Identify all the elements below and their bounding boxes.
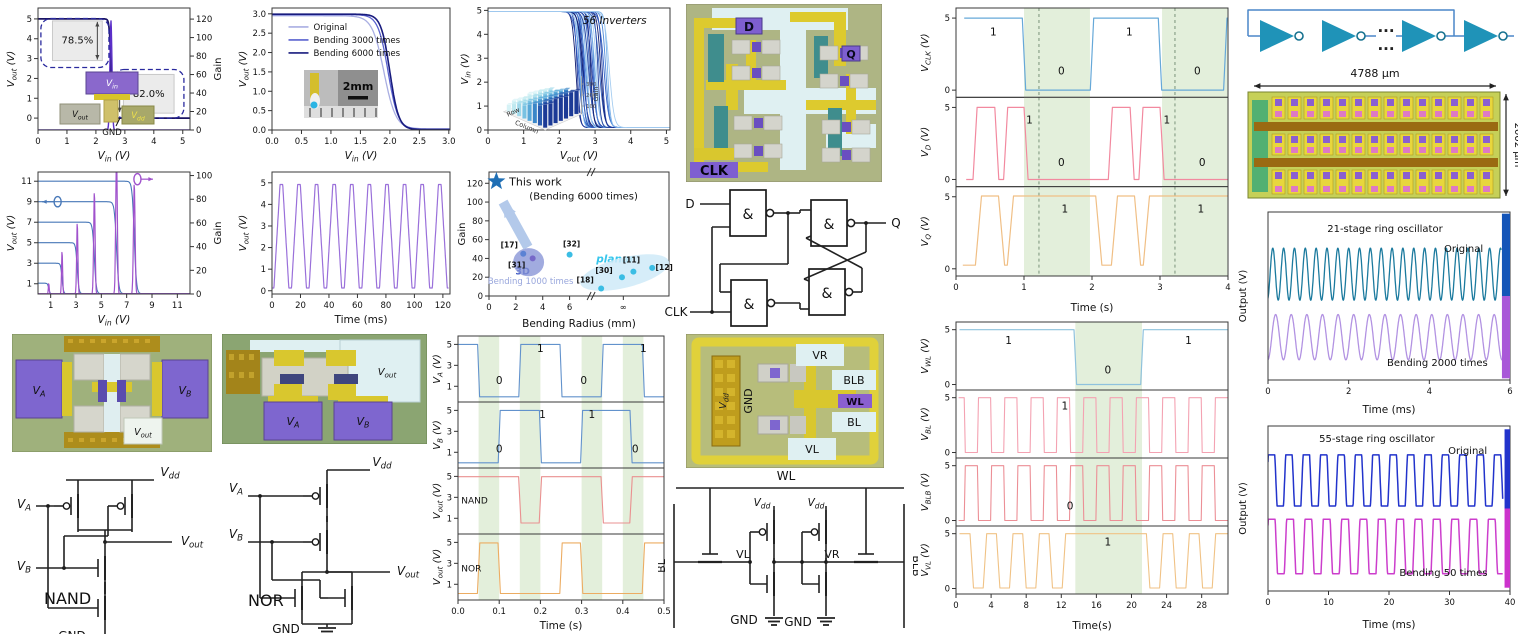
svg-text:0: 0 bbox=[953, 283, 958, 293]
nand-micrograph: Vout​VA​VB​ bbox=[12, 334, 212, 452]
d-latch-timing-panel: 05VCLK​ (V)101005VD​ (V)101005VQ​ (V)110… bbox=[918, 2, 1236, 316]
svg-text:28: 28 bbox=[1196, 601, 1207, 611]
svg-text:24: 24 bbox=[1161, 601, 1172, 611]
nand-nor-timing-panel: 135VA​ (V)0101135VB​ (V)0110135Vout​ (V)… bbox=[430, 332, 672, 634]
svg-text:3: 3 bbox=[477, 54, 482, 64]
inverters-56-panel: 012345Vin​ (V)012345Vout​ (V)56 Inverter… bbox=[458, 2, 680, 164]
svg-text:5: 5 bbox=[945, 14, 950, 24]
ring-oscillator-schematic: ...... bbox=[1238, 2, 1516, 64]
svg-text:0: 0 bbox=[945, 381, 950, 391]
svg-text:1: 1 bbox=[1197, 204, 1204, 216]
svg-text:1.5: 1.5 bbox=[252, 68, 266, 78]
svg-text:80: 80 bbox=[196, 52, 207, 62]
svg-text:1: 1 bbox=[640, 343, 647, 355]
svg-text:3.0: 3.0 bbox=[442, 137, 456, 147]
nand-schematic: Vdd​Vout​GNDVA​VB​ bbox=[8, 452, 220, 634]
svg-text:GND: GND bbox=[102, 128, 122, 138]
svg-text:40: 40 bbox=[196, 243, 207, 253]
svg-text:5: 5 bbox=[945, 530, 950, 540]
svg-text:Vdd​: Vdd​ bbox=[372, 455, 392, 472]
svg-text:1: 1 bbox=[1026, 114, 1033, 126]
svg-text:80: 80 bbox=[196, 195, 207, 205]
svg-text:78.5%: 78.5% bbox=[61, 36, 93, 47]
svg-text:2: 2 bbox=[93, 137, 98, 147]
svg-text:60: 60 bbox=[472, 236, 483, 246]
svg-text:D: D bbox=[685, 197, 694, 211]
svg-text:16: 16 bbox=[1091, 601, 1102, 611]
ring-oscillator-schematic-svg: ...... bbox=[1238, 2, 1516, 64]
svg-text:VL: VL bbox=[736, 548, 751, 561]
svg-text:1: 1 bbox=[1021, 283, 1026, 293]
svg-text:0: 0 bbox=[945, 86, 950, 96]
svg-text:3: 3 bbox=[27, 259, 32, 269]
svg-text:1: 1 bbox=[447, 514, 452, 524]
svg-text:3: 3 bbox=[27, 55, 32, 65]
svg-text:1: 1 bbox=[477, 102, 482, 112]
svg-text:0: 0 bbox=[496, 375, 503, 387]
svg-text:Vin​ (V): Vin​ (V) bbox=[98, 314, 131, 328]
nor-caption: NOR bbox=[248, 591, 284, 610]
ro21-output: Output (V)0246Time (ms)21-stage ring osc… bbox=[1236, 206, 1516, 418]
oscillator-output: 012345Vout​ (V)020406080100120Time (ms) bbox=[236, 166, 460, 328]
svg-text:0.5: 0.5 bbox=[295, 137, 309, 147]
svg-text:1: 1 bbox=[1005, 335, 1012, 347]
svg-text:1: 1 bbox=[990, 26, 997, 38]
svg-text:100: 100 bbox=[196, 172, 212, 182]
svg-text:0: 0 bbox=[27, 114, 32, 124]
svg-text:4: 4 bbox=[1225, 283, 1230, 293]
ro21-panel: Output (V)0246Time (ms)21-stage ring osc… bbox=[1236, 206, 1516, 418]
svg-text:Bending 3000 times: Bending 3000 times bbox=[314, 36, 401, 46]
svg-text:20: 20 bbox=[1126, 601, 1137, 611]
svg-text:BLB: BLB bbox=[843, 374, 864, 387]
svg-text:Vin​ (V): Vin​ (V) bbox=[98, 150, 131, 164]
svg-text:1: 1 bbox=[537, 343, 544, 355]
svg-text:CLK: CLK bbox=[665, 305, 689, 319]
56-inverters-vtc: 012345Vin​ (V)012345Vout​ (V)56 Inverter… bbox=[458, 2, 680, 164]
svg-text:2: 2 bbox=[557, 137, 562, 147]
svg-text:0: 0 bbox=[1067, 501, 1074, 513]
svg-text:1: 1 bbox=[1185, 335, 1192, 347]
svg-text:VCLK​ (V): VCLK​ (V) bbox=[920, 33, 933, 71]
svg-text:1: 1 bbox=[48, 301, 53, 311]
gain-vs-radius-panel: 020406080100120Gain0246∞Bending Radius (… bbox=[455, 166, 681, 332]
svg-text:3: 3 bbox=[592, 137, 597, 147]
svg-text:Vin​ (V): Vin​ (V) bbox=[460, 53, 473, 84]
svg-text:2: 2 bbox=[261, 244, 266, 254]
svg-text:0.4: 0.4 bbox=[616, 607, 630, 617]
svg-text:1: 1 bbox=[1104, 537, 1111, 549]
d-latch-micrograph-svg: DQCLK bbox=[686, 4, 882, 182]
svg-text:1: 1 bbox=[1126, 26, 1133, 38]
svg-text:0: 0 bbox=[632, 443, 639, 455]
svg-text:11: 11 bbox=[21, 177, 32, 187]
svg-text:Time (s): Time (s) bbox=[539, 620, 583, 632]
svg-text:[11]: [11] bbox=[623, 256, 640, 265]
svg-text:2: 2 bbox=[27, 74, 32, 84]
svg-text:20: 20 bbox=[295, 301, 306, 311]
svg-text:100: 100 bbox=[467, 198, 483, 208]
svg-text:0: 0 bbox=[485, 137, 490, 147]
svg-text:1: 1 bbox=[64, 137, 69, 147]
svg-text:0.0: 0.0 bbox=[252, 126, 266, 136]
svg-text:5: 5 bbox=[447, 340, 452, 350]
svg-text:30: 30 bbox=[1444, 598, 1455, 608]
svg-text:0: 0 bbox=[1265, 598, 1270, 608]
svg-text:1.5: 1.5 bbox=[354, 137, 368, 147]
svg-text:&: & bbox=[744, 297, 755, 313]
svg-text:BL: BL bbox=[847, 416, 862, 429]
svg-text:Time (ms): Time (ms) bbox=[1362, 404, 1416, 416]
svg-text:VBLB​ (V): VBLB​ (V) bbox=[920, 473, 933, 512]
svg-text:2mm: 2mm bbox=[343, 80, 374, 93]
svg-text:Vout​ (V): Vout​ (V) bbox=[238, 215, 251, 251]
svg-text:4: 4 bbox=[261, 200, 266, 210]
svg-text:0: 0 bbox=[1104, 365, 1111, 377]
svg-text:9: 9 bbox=[27, 198, 32, 208]
svg-text:10: 10 bbox=[1323, 598, 1334, 608]
ring-oscillator-chip: 4788 μm2002 μm bbox=[1234, 64, 1518, 204]
svg-text:40: 40 bbox=[1505, 598, 1516, 608]
svg-text:5: 5 bbox=[27, 239, 32, 249]
svg-text:4788 μm: 4788 μm bbox=[1350, 67, 1399, 80]
svg-text:VD​ (V): VD​ (V) bbox=[920, 127, 933, 157]
svg-text:4: 4 bbox=[27, 35, 32, 45]
svg-text:3: 3 bbox=[122, 137, 127, 147]
svg-text:2002 μm: 2002 μm bbox=[1512, 123, 1518, 168]
svg-text:1: 1 bbox=[261, 265, 266, 275]
svg-text:2: 2 bbox=[1346, 387, 1351, 397]
oscillator-wave-panel: 012345Vout​ (V)020406080100120Time (ms) bbox=[236, 166, 460, 328]
d-latch-micrograph: DQCLK bbox=[686, 4, 882, 182]
svg-text:GND: GND bbox=[784, 615, 812, 629]
svg-text:Vdd​: Vdd​ bbox=[808, 497, 825, 511]
svg-text:4: 4 bbox=[988, 601, 993, 611]
svg-text:Output (V): Output (V) bbox=[1238, 270, 1249, 323]
svg-text:120: 120 bbox=[435, 301, 451, 311]
svg-text:80: 80 bbox=[381, 301, 392, 311]
d-latch-gate-schematic: &&&&DCLKQ bbox=[660, 172, 912, 330]
svg-text:3: 3 bbox=[447, 493, 452, 503]
svg-text:Vout​ (V): Vout​ (V) bbox=[238, 51, 251, 87]
svg-text:5: 5 bbox=[447, 406, 452, 416]
svg-text:2: 2 bbox=[1089, 283, 1094, 293]
svg-text:Bending Radius (mm): Bending Radius (mm) bbox=[522, 318, 636, 330]
svg-text:4: 4 bbox=[628, 137, 633, 147]
svg-text:0: 0 bbox=[196, 290, 201, 300]
svg-text:0.2: 0.2 bbox=[534, 607, 548, 617]
svg-text:VA​ (V): VA​ (V) bbox=[432, 354, 445, 384]
svg-text:0: 0 bbox=[580, 375, 587, 387]
svg-text:Bending 50 times: Bending 50 times bbox=[1399, 568, 1487, 579]
svg-text:60: 60 bbox=[352, 301, 363, 311]
svg-text:Time(s): Time(s) bbox=[1071, 620, 1111, 632]
svg-text:[31]: [31] bbox=[508, 260, 525, 269]
svg-text:5: 5 bbox=[945, 462, 950, 472]
svg-text:5: 5 bbox=[261, 179, 266, 189]
svg-text:3: 3 bbox=[73, 301, 78, 311]
figure-canvas: 012345Vout​ (V)012345Vin​ (V)02040608010… bbox=[0, 0, 1518, 635]
svg-text:GND: GND bbox=[742, 388, 755, 413]
svg-text:VR: VR bbox=[812, 349, 828, 362]
svg-text:Bending 1000 times: Bending 1000 times bbox=[488, 277, 574, 287]
svg-text:Vout​: Vout​ bbox=[397, 564, 420, 581]
svg-text:Bending 6000 times: Bending 6000 times bbox=[314, 49, 401, 59]
svg-text:0.1: 0.1 bbox=[492, 607, 506, 617]
ro55-output: Output (V)010203040Time (ms)55-stage rin… bbox=[1236, 420, 1516, 633]
svg-text:(Bending 6000 times): (Bending 6000 times) bbox=[529, 191, 638, 202]
svg-text:20: 20 bbox=[472, 273, 483, 283]
svg-text:Gain: Gain bbox=[457, 223, 468, 246]
svg-text:0: 0 bbox=[953, 601, 958, 611]
svg-text:Q: Q bbox=[846, 48, 855, 61]
svg-text:2.5: 2.5 bbox=[252, 29, 266, 39]
svg-text:0: 0 bbox=[477, 126, 482, 136]
svg-text:WL: WL bbox=[846, 397, 864, 408]
svg-text:Vout​ (V): Vout​ (V) bbox=[432, 549, 445, 585]
svg-text:1: 1 bbox=[521, 137, 526, 147]
svg-text:3: 3 bbox=[447, 361, 452, 371]
sram-micrograph: Vdd​GNDVRBLBBLVLWL bbox=[686, 334, 884, 468]
svg-text:Vout​ (V): Vout​ (V) bbox=[6, 51, 19, 87]
svg-text:Original: Original bbox=[1444, 244, 1483, 255]
svg-text:Gain: Gain bbox=[213, 222, 224, 245]
svg-text:1: 1 bbox=[589, 409, 596, 421]
ring-chip-svg: 4788 μm2002 μm bbox=[1234, 64, 1518, 204]
svg-text:1: 1 bbox=[1163, 114, 1170, 126]
inverter-vtc: 012345Vout​ (V)012345Vin​ (V)02040608010… bbox=[4, 2, 228, 164]
svg-text:VQ​ (V): VQ​ (V) bbox=[920, 216, 933, 246]
svg-text:5: 5 bbox=[477, 6, 482, 16]
svg-text:5: 5 bbox=[664, 137, 669, 147]
svg-text:0.3: 0.3 bbox=[575, 607, 589, 617]
svg-text:NAND: NAND bbox=[461, 497, 488, 507]
svg-text:40: 40 bbox=[324, 301, 335, 311]
svg-text:40: 40 bbox=[196, 89, 207, 99]
svg-text:1: 1 bbox=[1061, 401, 1068, 413]
svg-text:12: 12 bbox=[1056, 601, 1067, 611]
svg-text:Original: Original bbox=[1448, 446, 1487, 457]
ro55-panel: Output (V)010203040Time (ms)55-stage rin… bbox=[1236, 420, 1516, 633]
svg-text:0.5: 0.5 bbox=[252, 107, 266, 117]
svg-text:55-stage ring oscillator: 55-stage ring oscillator bbox=[1319, 434, 1435, 445]
svg-text:2.0: 2.0 bbox=[383, 137, 397, 147]
svg-text:Q: Q bbox=[891, 216, 900, 230]
svg-text:5: 5 bbox=[945, 103, 950, 113]
svg-text:4: 4 bbox=[477, 30, 482, 40]
svg-text:This work: This work bbox=[508, 175, 562, 188]
sram-schematic-svg: WLBLBLBVLVRVdd​Vdd​GNDGND bbox=[658, 468, 918, 634]
svg-text:0: 0 bbox=[945, 585, 950, 595]
nand-schematic-svg: Vdd​Vout​GNDVA​VB​ bbox=[8, 452, 220, 634]
svg-text:VL: VL bbox=[805, 443, 820, 456]
svg-text:100: 100 bbox=[586, 104, 597, 110]
svg-text:VB​: VB​ bbox=[17, 559, 31, 576]
svg-text:0: 0 bbox=[945, 265, 950, 275]
svg-text:Gain: Gain bbox=[213, 58, 224, 81]
svg-text:Gain: Gain bbox=[592, 87, 600, 102]
svg-text:Time (ms): Time (ms) bbox=[1362, 619, 1416, 631]
sram-schematic: WLBLBLBVLVRVdd​Vdd​GNDGND bbox=[658, 468, 918, 634]
svg-text:1: 1 bbox=[447, 580, 452, 590]
svg-text:120: 120 bbox=[467, 179, 483, 189]
svg-text:100: 100 bbox=[196, 34, 212, 44]
svg-text:VWL​ (V): VWL​ (V) bbox=[920, 338, 933, 374]
svg-text:11: 11 bbox=[172, 301, 183, 311]
svg-text:120: 120 bbox=[196, 15, 212, 25]
svg-text:BL: BL bbox=[658, 558, 668, 573]
svg-text:&: & bbox=[822, 286, 833, 302]
svg-text:20: 20 bbox=[1384, 598, 1395, 608]
nand-nor-timing: 135VA​ (V)0101135VB​ (V)0110135Vout​ (V)… bbox=[430, 332, 672, 634]
svg-text:VA​: VA​ bbox=[17, 497, 31, 514]
svg-text:Vdd​: Vdd​ bbox=[160, 465, 180, 482]
cascade-vtc-panel: 1357911Vout​ (V)1357911Vin​ (V)020406080… bbox=[4, 166, 228, 328]
svg-text:0: 0 bbox=[945, 175, 950, 185]
svg-text:0.0: 0.0 bbox=[451, 607, 465, 617]
d-latch-gate-schematic-svg: &&&&DCLKQ bbox=[660, 172, 912, 330]
svg-text:2: 2 bbox=[513, 303, 518, 313]
svg-text:0: 0 bbox=[1194, 65, 1201, 77]
svg-text:0: 0 bbox=[486, 303, 491, 313]
svg-text:BLB: BLB bbox=[910, 555, 918, 576]
svg-text:4: 4 bbox=[151, 137, 156, 147]
svg-text:5: 5 bbox=[99, 301, 104, 311]
svg-text:5: 5 bbox=[180, 137, 185, 147]
svg-text:60: 60 bbox=[196, 219, 207, 229]
svg-text:7: 7 bbox=[124, 301, 129, 311]
svg-text:3: 3 bbox=[261, 222, 266, 232]
svg-text:20: 20 bbox=[196, 108, 207, 118]
svg-text:VA​: VA​ bbox=[229, 481, 243, 498]
cascade-vtc-gain: 1357911Vout​ (V)1357911Vin​ (V)020406080… bbox=[4, 166, 228, 328]
svg-text:[17]: [17] bbox=[501, 241, 518, 250]
gain-vs-bending-radius: 020406080100120Gain0246∞Bending Radius (… bbox=[455, 166, 681, 332]
svg-text:60: 60 bbox=[196, 71, 207, 81]
svg-text:0: 0 bbox=[35, 137, 40, 147]
svg-text:0: 0 bbox=[196, 126, 201, 136]
svg-text:5: 5 bbox=[447, 472, 452, 482]
svg-text:0: 0 bbox=[1058, 157, 1065, 169]
svg-text:Bending 2000 times: Bending 2000 times bbox=[1387, 358, 1488, 369]
svg-text:56 Inverters: 56 Inverters bbox=[583, 15, 647, 27]
svg-text:4: 4 bbox=[1427, 387, 1432, 397]
svg-text:3: 3 bbox=[1157, 283, 1162, 293]
sram-timing: 05VWL​ (V)10105VBL​ (V)105VBLB​ (V)005VV… bbox=[918, 318, 1236, 634]
svg-text:5: 5 bbox=[27, 15, 32, 25]
svg-text:21-stage ring oscillator: 21-stage ring oscillator bbox=[1327, 224, 1443, 235]
svg-text:Time (ms): Time (ms) bbox=[334, 314, 388, 326]
svg-text:20: 20 bbox=[196, 266, 207, 276]
svg-text:0: 0 bbox=[269, 301, 274, 311]
svg-text:...: ... bbox=[1377, 18, 1394, 36]
svg-text:6: 6 bbox=[1507, 387, 1512, 397]
svg-text:Vout​ (V): Vout​ (V) bbox=[432, 483, 445, 519]
inverter-vtc-panel: 012345Vout​ (V)012345Vin​ (V)02040608010… bbox=[4, 2, 228, 164]
svg-text:NOR: NOR bbox=[461, 565, 481, 575]
svg-text:Vin​ (V): Vin​ (V) bbox=[345, 150, 378, 164]
svg-text:1: 1 bbox=[447, 382, 452, 392]
svg-text:5: 5 bbox=[945, 193, 950, 203]
svg-text:0: 0 bbox=[945, 517, 950, 527]
svg-text:2.5: 2.5 bbox=[413, 137, 427, 147]
svg-text:1: 1 bbox=[27, 94, 32, 104]
svg-text:1.0: 1.0 bbox=[252, 87, 266, 97]
svg-text:0: 0 bbox=[1199, 157, 1206, 169]
svg-text:0: 0 bbox=[261, 287, 266, 297]
svg-text:3: 3 bbox=[447, 559, 452, 569]
svg-text:1.0: 1.0 bbox=[324, 137, 338, 147]
svg-text:Output (V): Output (V) bbox=[1238, 482, 1249, 535]
svg-text:...: ... bbox=[1377, 36, 1394, 54]
sram-micrograph-svg: Vdd​GNDVRBLBBLVLWL bbox=[686, 334, 884, 468]
svg-text:1: 1 bbox=[1061, 204, 1068, 216]
svg-text:2: 2 bbox=[477, 78, 482, 88]
svg-text:WL: WL bbox=[777, 469, 796, 483]
svg-text:2.0: 2.0 bbox=[252, 49, 266, 59]
bending-vtc: 0.00.51.01.52.02.53.0Vout​ (V)0.00.51.01… bbox=[236, 2, 460, 164]
svg-text:100: 100 bbox=[406, 301, 422, 311]
nand-micrograph-svg: Vout​VA​VB​ bbox=[12, 334, 212, 452]
nor-micrograph: Vout​VA​VB​ bbox=[222, 334, 427, 444]
svg-text:GND: GND bbox=[272, 622, 300, 634]
sram-timing-panel: 05VWL​ (V)10105VBL​ (V)105VBLB​ (V)005VV… bbox=[918, 318, 1236, 634]
svg-text:&: & bbox=[743, 207, 754, 223]
svg-text:40: 40 bbox=[472, 254, 483, 264]
nor-micrograph-svg: Vout​VA​VB​ bbox=[222, 334, 427, 444]
svg-text:Original: Original bbox=[314, 23, 348, 33]
bending-vtc-panel: 0.00.51.01.52.02.53.0Vout​ (V)0.00.51.01… bbox=[236, 2, 460, 164]
svg-text:Vout​ (V): Vout​ (V) bbox=[6, 215, 19, 251]
svg-text:0: 0 bbox=[1058, 65, 1065, 77]
svg-text:Vout​ (V): Vout​ (V) bbox=[560, 150, 598, 164]
svg-text:3.0: 3.0 bbox=[252, 10, 266, 20]
svg-text:Vdd​: Vdd​ bbox=[754, 497, 771, 511]
svg-text:3: 3 bbox=[447, 427, 452, 437]
svg-text:∞: ∞ bbox=[620, 303, 627, 313]
svg-text:1: 1 bbox=[447, 448, 452, 458]
svg-text:VB​: VB​ bbox=[229, 527, 243, 544]
svg-text:0: 0 bbox=[1265, 387, 1270, 397]
svg-text:6: 6 bbox=[567, 303, 572, 313]
svg-text:[30]: [30] bbox=[595, 266, 612, 275]
svg-text:Vout​: Vout​ bbox=[181, 534, 204, 551]
svg-text:VB​ (V): VB​ (V) bbox=[432, 420, 445, 450]
svg-text:1: 1 bbox=[27, 280, 32, 290]
svg-text:80: 80 bbox=[472, 217, 483, 227]
svg-text:[32]: [32] bbox=[563, 240, 580, 249]
svg-text:5: 5 bbox=[945, 326, 950, 336]
nand-caption: NAND bbox=[44, 589, 91, 608]
svg-text:VVL​ (V): VVL​ (V) bbox=[920, 543, 933, 577]
svg-text:VBL​ (V): VBL​ (V) bbox=[920, 407, 933, 441]
svg-text:5: 5 bbox=[945, 394, 950, 404]
svg-text:D: D bbox=[744, 20, 754, 34]
d-latch-timing: 05VCLK​ (V)101005VD​ (V)101005VQ​ (V)110… bbox=[918, 2, 1236, 316]
svg-text:1: 1 bbox=[539, 409, 546, 421]
svg-text:5: 5 bbox=[447, 538, 452, 548]
svg-text:0: 0 bbox=[945, 449, 950, 459]
svg-text:[18]: [18] bbox=[577, 275, 594, 284]
svg-text:Time (s): Time (s) bbox=[1070, 302, 1114, 314]
svg-text:&: & bbox=[824, 217, 835, 233]
svg-text:0: 0 bbox=[478, 292, 483, 302]
svg-text:0: 0 bbox=[496, 443, 503, 455]
svg-text:9: 9 bbox=[149, 301, 154, 311]
svg-text:8: 8 bbox=[1023, 601, 1028, 611]
svg-text:7: 7 bbox=[27, 218, 32, 228]
svg-text:4: 4 bbox=[540, 303, 545, 313]
